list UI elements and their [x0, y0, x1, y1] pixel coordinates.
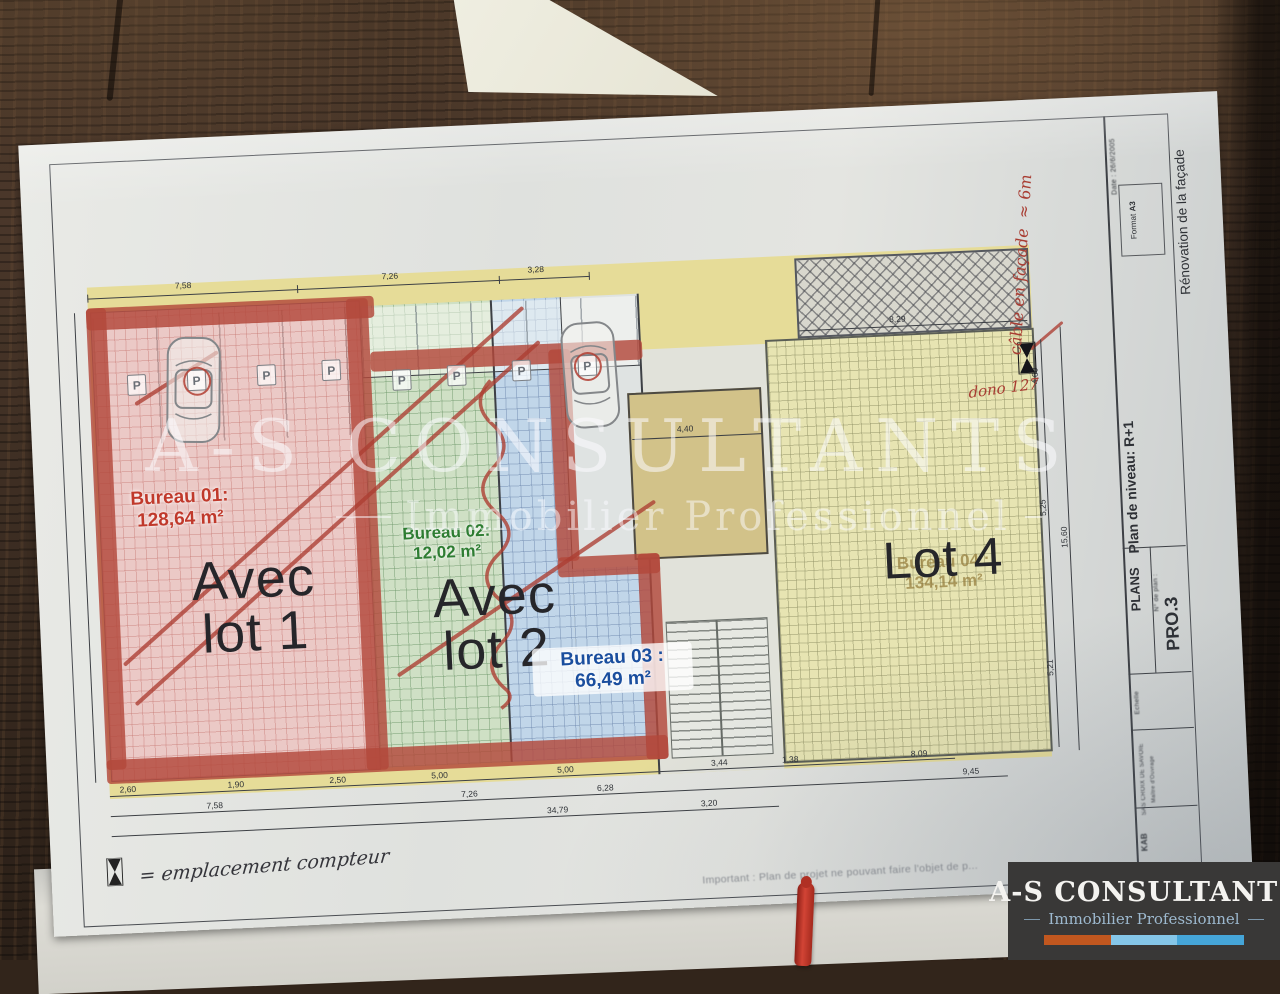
watermark-rule [336, 516, 391, 518]
dim-label: 5,21 [1045, 659, 1056, 676]
dim-label: 7,58 [206, 800, 223, 811]
dim-label: 3,44 [711, 757, 728, 768]
titleblock-category: PLANS [1126, 553, 1144, 626]
titleblock-format-box: Format A3 [1118, 183, 1165, 257]
dim-label: 1,38 [782, 754, 799, 765]
stair-rail [716, 620, 724, 755]
dim-label: 7,26 [461, 788, 478, 799]
agency-logo-name: A-S CONSULTANTS [989, 877, 1280, 908]
colorbar-lightblue [1111, 935, 1178, 945]
titleblock-plan-no: PRO.3 [1160, 583, 1185, 664]
bureau1-label: Bureau 01:128,64 m² [94, 483, 266, 534]
parking-p-icon: P [447, 365, 467, 387]
dim-label: 7,26 [381, 271, 398, 282]
dim-label: 7,58 [175, 280, 192, 291]
parking-p-icon: P [321, 359, 341, 381]
parking-p-icon: P [256, 364, 276, 386]
titleblock-format: Format A3 [1127, 189, 1139, 251]
parking-p-icon: P [127, 374, 147, 396]
dim-label: 3,28 [527, 264, 544, 275]
dim-label: 6,28 [597, 782, 614, 793]
parking-p-icon: P [392, 369, 412, 391]
dim-label: 34,79 [547, 804, 569, 815]
dim-label: 8,29 [889, 314, 906, 325]
dim-label: 1,90 [227, 779, 244, 790]
dim-label: 9,45 [962, 766, 979, 777]
agency-logo: A-S CONSULTANTS Immobilier Professionnel [1008, 862, 1280, 960]
dim-label: 2,60 [119, 784, 136, 795]
colorbar-blue [1177, 935, 1244, 945]
parking-p-icon: P [512, 360, 532, 382]
dim-label: 5,00 [431, 770, 448, 781]
dim-label: 8,09 [911, 748, 928, 759]
agency-logo-tagline-row: Immobilier Professionnel [1024, 910, 1263, 928]
agency-logo-colorbar [1044, 935, 1244, 945]
bureau3-label: Bureau 03 :66,49 m² [532, 642, 694, 697]
colorbar-orange [1044, 935, 1111, 945]
parking-p-icon: P [577, 355, 597, 377]
watermark-title: A-S CONSULTANTS [130, 404, 1090, 488]
dim-label: 3,20 [701, 798, 718, 809]
watermark-subtitle: Immobilier Professionnel [336, 494, 1042, 540]
meter-symbol-icon [106, 858, 124, 887]
tagline-rule [1248, 919, 1264, 920]
dim-label: 15,60 [1059, 526, 1070, 548]
agency-logo-tagline: Immobilier Professionnel [1048, 910, 1239, 928]
lot1-big-label: Aveclot 1 [122, 548, 387, 665]
watermark-rule [1025, 516, 1042, 518]
dim-label: 2,50 [329, 774, 346, 785]
parking-p-icon: P [187, 369, 207, 391]
dim-label: 5,00 [557, 764, 574, 775]
tagline-rule [1024, 919, 1040, 920]
